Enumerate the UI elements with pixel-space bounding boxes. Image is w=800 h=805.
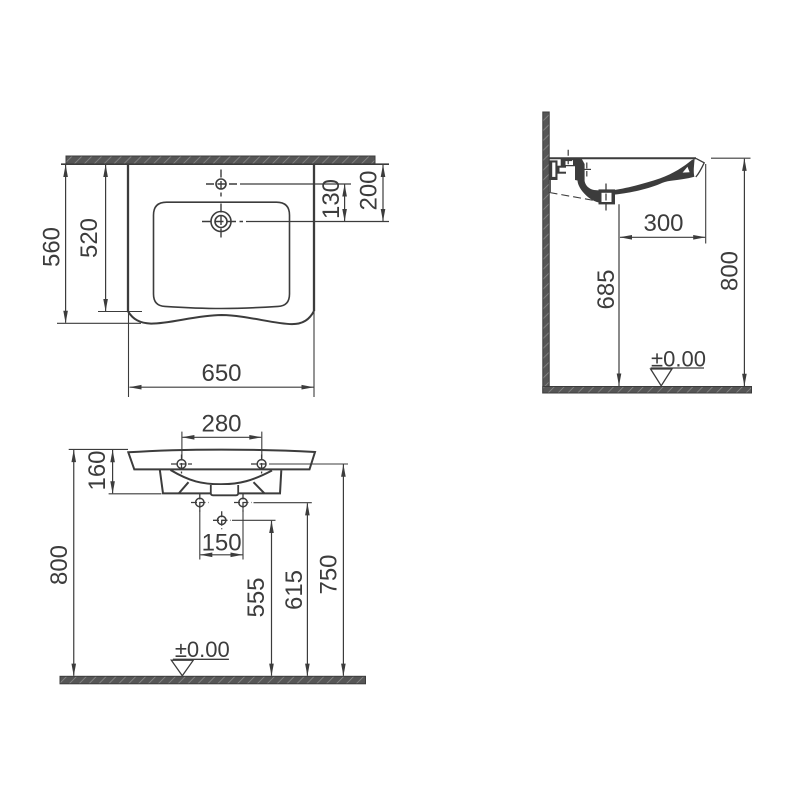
svg-text:750: 750	[315, 554, 342, 594]
svg-text:130: 130	[318, 179, 345, 219]
svg-text:200: 200	[355, 170, 382, 210]
svg-text:±0.00: ±0.00	[175, 637, 230, 662]
svg-text:520: 520	[76, 218, 103, 258]
svg-text:160: 160	[84, 450, 111, 490]
svg-text:615: 615	[281, 570, 308, 610]
svg-text:±0.00: ±0.00	[651, 347, 706, 372]
svg-text:300: 300	[643, 210, 683, 237]
svg-text:650: 650	[201, 360, 241, 387]
svg-text:280: 280	[201, 411, 241, 438]
svg-text:555: 555	[243, 577, 270, 617]
svg-text:800: 800	[716, 251, 743, 291]
svg-text:800: 800	[46, 545, 73, 585]
svg-text:560: 560	[38, 227, 65, 267]
svg-text:685: 685	[593, 269, 620, 309]
svg-text:150: 150	[202, 530, 242, 557]
